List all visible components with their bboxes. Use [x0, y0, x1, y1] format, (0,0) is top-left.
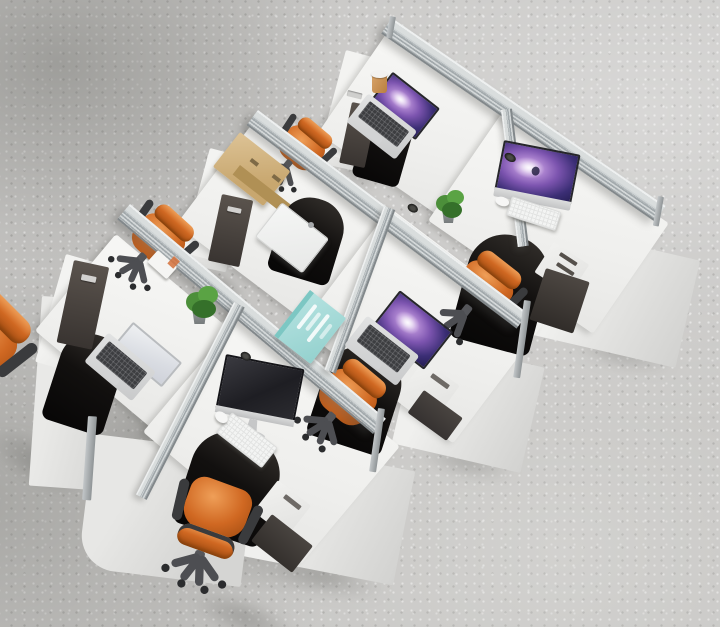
chair-caster	[317, 444, 327, 454]
plant-foliage	[182, 286, 224, 322]
chair-caster	[107, 255, 116, 264]
office-cubicles-photo	[0, 0, 720, 627]
chair-caster	[455, 337, 465, 347]
chair-caster	[160, 563, 171, 574]
chair-caster	[143, 283, 152, 292]
chair-caster	[217, 579, 228, 590]
laptop-logo	[308, 222, 314, 228]
chair-caster	[199, 585, 210, 596]
leaf-cluster	[192, 300, 216, 318]
chair-leg	[136, 260, 147, 284]
screen-glow	[390, 306, 425, 339]
chair-caster	[290, 186, 298, 194]
coffee-cup-lid	[371, 70, 388, 78]
leaf-cluster	[442, 202, 462, 218]
chair-caster	[128, 282, 137, 291]
plant-foliage	[433, 190, 469, 222]
